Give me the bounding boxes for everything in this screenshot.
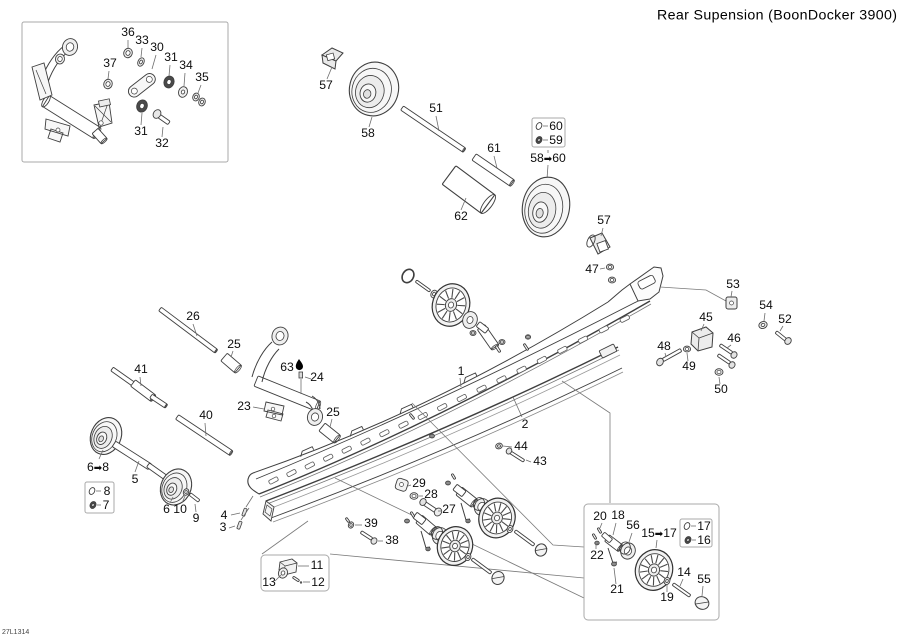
svg-text:33: 33 xyxy=(135,33,149,47)
svg-text:44: 44 xyxy=(514,439,528,453)
svg-text:57: 57 xyxy=(597,213,611,227)
svg-text:56: 56 xyxy=(626,518,640,532)
svg-text:18: 18 xyxy=(611,508,625,522)
svg-text:46: 46 xyxy=(727,331,741,345)
svg-text:59: 59 xyxy=(549,133,563,147)
svg-text:28: 28 xyxy=(424,487,438,501)
svg-text:6➡8: 6➡8 xyxy=(87,460,109,474)
svg-text:19: 19 xyxy=(660,590,674,604)
svg-text:16: 16 xyxy=(697,533,711,547)
svg-text:24: 24 xyxy=(310,370,324,384)
svg-text:25: 25 xyxy=(326,405,340,419)
svg-text:7: 7 xyxy=(103,498,110,512)
svg-text:41: 41 xyxy=(134,362,148,376)
svg-text:1: 1 xyxy=(458,364,465,378)
svg-text:22: 22 xyxy=(590,548,604,562)
svg-text:51: 51 xyxy=(429,101,443,115)
svg-text:52: 52 xyxy=(778,312,792,326)
svg-text:27L1314: 27L1314 xyxy=(2,629,29,636)
svg-text:58: 58 xyxy=(361,126,375,140)
svg-text:9: 9 xyxy=(193,511,200,525)
svg-text:17: 17 xyxy=(697,519,711,533)
svg-text:11: 11 xyxy=(311,558,324,572)
svg-text:39: 39 xyxy=(364,516,378,530)
svg-text:49: 49 xyxy=(682,359,696,373)
svg-text:2: 2 xyxy=(522,417,529,431)
svg-text:20: 20 xyxy=(593,509,607,523)
svg-text:15➡17: 15➡17 xyxy=(641,526,677,540)
svg-text:62: 62 xyxy=(454,209,468,223)
svg-text:3: 3 xyxy=(220,520,227,534)
svg-text:13: 13 xyxy=(262,575,276,589)
svg-text:26: 26 xyxy=(186,309,200,323)
svg-text:61: 61 xyxy=(487,141,501,155)
svg-text:5: 5 xyxy=(132,472,139,486)
svg-text:57: 57 xyxy=(319,78,333,92)
svg-text:48: 48 xyxy=(657,339,671,353)
svg-text:31: 31 xyxy=(134,124,148,138)
svg-text:55: 55 xyxy=(697,572,711,586)
svg-text:35: 35 xyxy=(195,70,209,84)
svg-text:58➡60: 58➡60 xyxy=(530,151,566,165)
svg-text:32: 32 xyxy=(155,136,169,150)
svg-text:63: 63 xyxy=(280,360,294,374)
svg-text:60: 60 xyxy=(549,119,563,133)
svg-text:12: 12 xyxy=(311,575,325,589)
svg-text:34: 34 xyxy=(179,58,193,72)
svg-text:6 10: 6 10 xyxy=(163,502,187,516)
svg-text:23: 23 xyxy=(237,399,251,413)
svg-text:36: 36 xyxy=(121,25,135,39)
svg-text:38: 38 xyxy=(385,533,399,547)
svg-text:8: 8 xyxy=(104,484,111,498)
svg-text:Rear Supension (BoonDocker 390: Rear Supension (BoonDocker 3900) xyxy=(657,8,897,24)
svg-text:40: 40 xyxy=(199,408,213,422)
svg-text:53: 53 xyxy=(726,277,740,291)
svg-text:50: 50 xyxy=(714,382,728,396)
svg-text:14: 14 xyxy=(677,565,691,579)
svg-text:47: 47 xyxy=(585,262,599,276)
svg-text:43: 43 xyxy=(533,454,547,468)
svg-text:25: 25 xyxy=(227,337,241,351)
svg-text:27: 27 xyxy=(442,502,456,516)
svg-text:31: 31 xyxy=(164,50,178,64)
svg-text:21: 21 xyxy=(610,582,624,596)
svg-text:54: 54 xyxy=(759,298,773,312)
svg-text:37: 37 xyxy=(103,56,117,70)
svg-text:45: 45 xyxy=(699,310,713,324)
svg-text:30: 30 xyxy=(150,40,164,54)
